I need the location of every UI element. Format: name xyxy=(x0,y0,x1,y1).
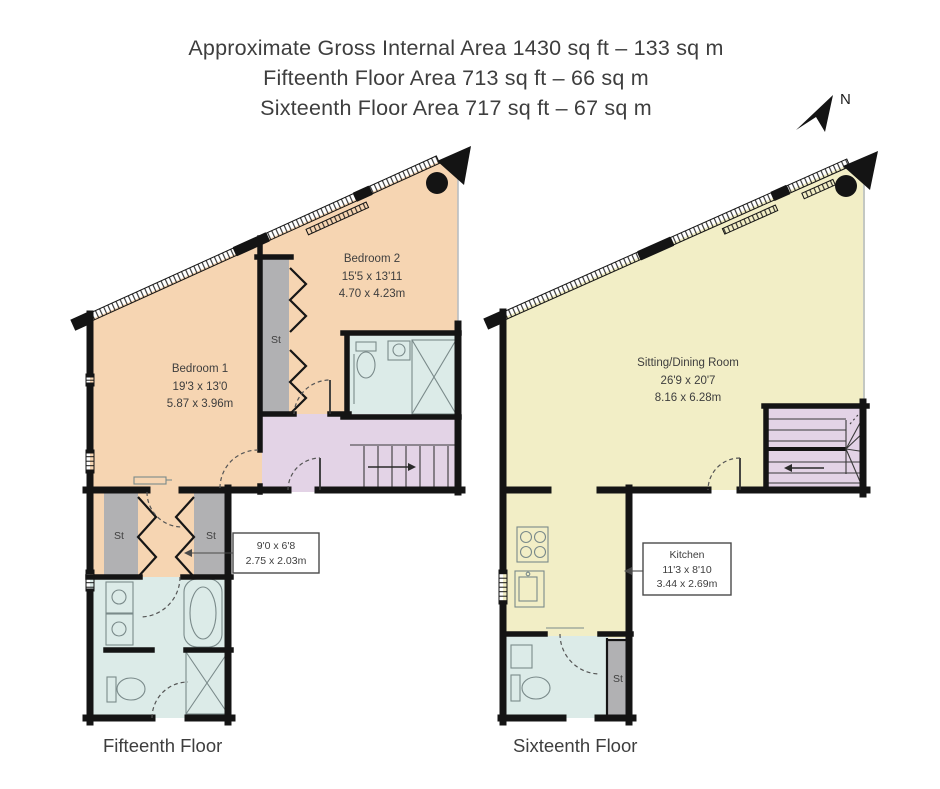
ensuite-fill xyxy=(346,334,458,418)
fifteenth-floor-label: Fifteenth Floor xyxy=(103,735,222,756)
storage-label: St xyxy=(613,673,623,685)
floorplan-page: Approximate Gross Internal Area 1430 sq … xyxy=(0,0,940,789)
svg-text:Sitting/Dining Room: Sitting/Dining Room xyxy=(637,357,739,369)
svg-text:19'3 x 13'0: 19'3 x 13'0 xyxy=(173,381,228,393)
svg-text:3.44 x 2.69m: 3.44 x 2.69m xyxy=(657,578,718,590)
bedroom1-label: Bedroom 1 19'3 x 13'0 5.87 x 3.96m xyxy=(167,363,233,410)
svg-text:Bedroom 1: Bedroom 1 xyxy=(172,363,228,375)
bedroom2-label: Bedroom 2 15'5 x 13'11 4.70 x 4.23m xyxy=(339,253,405,300)
north-arrow: N xyxy=(796,91,851,132)
storage-mid-label: St xyxy=(271,334,281,346)
svg-text:Kitchen: Kitchen xyxy=(669,549,704,561)
svg-text:26'9 x 20'7: 26'9 x 20'7 xyxy=(661,375,716,387)
column xyxy=(426,172,448,194)
svg-text:11'3 x 8'10: 11'3 x 8'10 xyxy=(662,564,712,576)
north-arrow-icon xyxy=(796,95,833,132)
storage-right-label: St xyxy=(206,530,216,542)
floorplan-drawing: N xyxy=(0,0,940,789)
storage-left-label: St xyxy=(114,530,124,542)
hallway-fill xyxy=(262,414,458,492)
svg-text:Bedroom 2: Bedroom 2 xyxy=(344,253,400,265)
svg-text:9'0 x 6'8: 9'0 x 6'8 xyxy=(257,540,296,552)
svg-text:4.70 x 4.23m: 4.70 x 4.23m xyxy=(339,288,405,300)
fifteenth-floor-plan: Bedroom 2 15'5 x 13'11 4.70 x 4.23m Bedr… xyxy=(70,146,471,756)
kitchen-callout: Kitchen 11'3 x 8'10 3.44 x 2.69m xyxy=(624,543,731,595)
north-label: N xyxy=(840,91,851,108)
window xyxy=(499,570,507,604)
sixteenth-floor-plan: Sitting/Dining Room 26'9 x 20'7 8.16 x 6… xyxy=(483,151,878,756)
svg-text:5.87 x 3.96m: 5.87 x 3.96m xyxy=(167,398,233,410)
svg-text:2.75 x 2.03m: 2.75 x 2.03m xyxy=(246,555,307,567)
kitchen-fill xyxy=(503,490,630,638)
svg-text:15'5 x 13'11: 15'5 x 13'11 xyxy=(342,271,402,283)
sixteenth-floor-label: Sixteenth Floor xyxy=(513,735,637,756)
svg-text:8.16 x 6.28m: 8.16 x 6.28m xyxy=(655,392,721,404)
column xyxy=(835,175,857,197)
